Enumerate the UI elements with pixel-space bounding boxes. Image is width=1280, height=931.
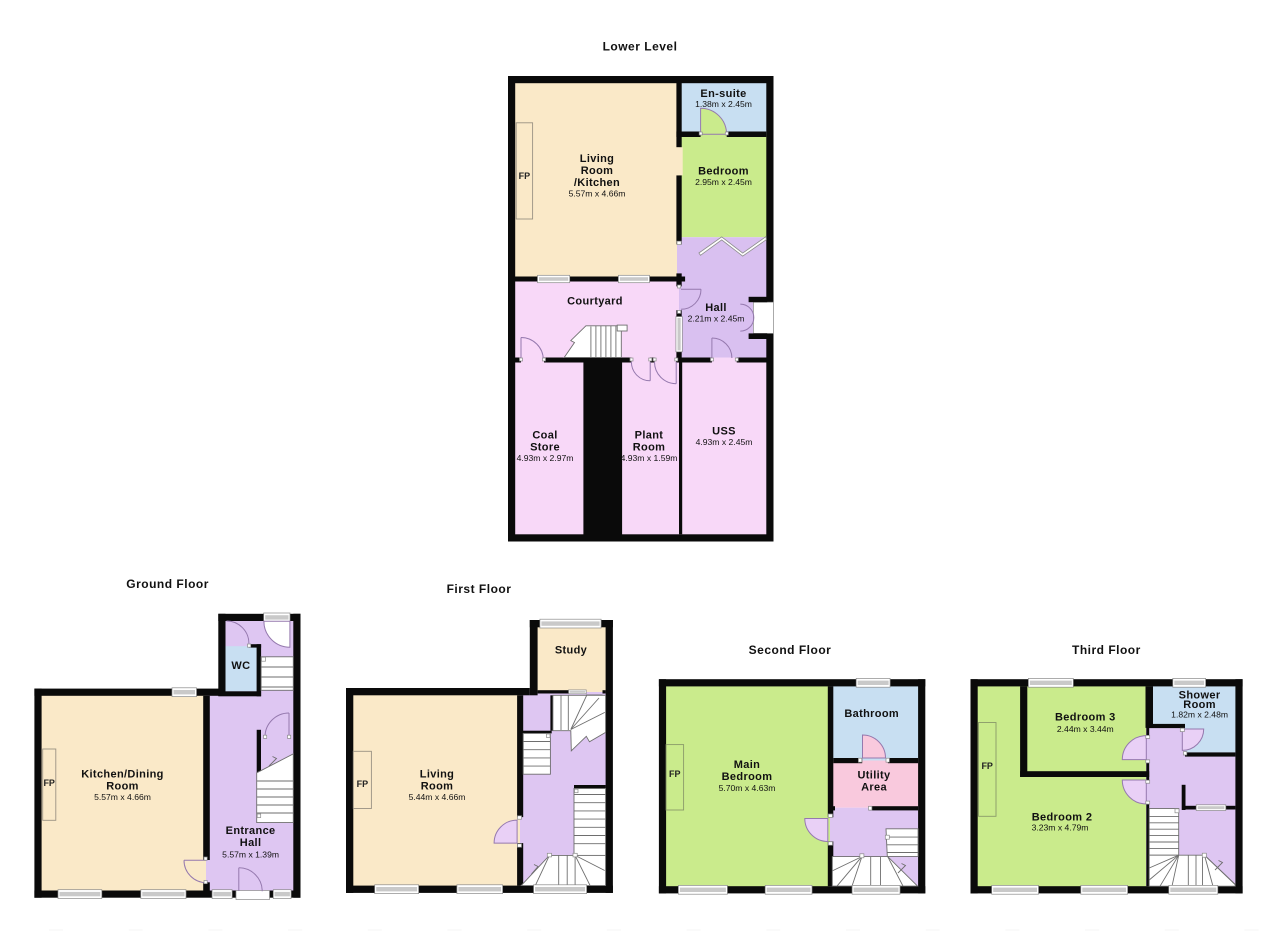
svg-text:WC: WC bbox=[231, 660, 250, 672]
svg-text:4.93m x 1.59m: 4.93m x 1.59m bbox=[621, 453, 678, 463]
svg-text:Coal: Coal bbox=[532, 430, 557, 442]
svg-text:Plant: Plant bbox=[635, 430, 664, 442]
svg-text:FP: FP bbox=[519, 171, 531, 181]
svg-text:Hall: Hall bbox=[240, 837, 262, 849]
svg-text:4.93m x 2.97m: 4.93m x 2.97m bbox=[517, 453, 574, 463]
svg-text:4.93m x 2.45m: 4.93m x 2.45m bbox=[696, 437, 753, 447]
svg-text:Room: Room bbox=[106, 781, 139, 793]
svg-text:Area: Area bbox=[861, 782, 887, 794]
svg-text:Utility: Utility bbox=[857, 770, 891, 782]
svg-text:Room: Room bbox=[633, 442, 666, 454]
svg-text:5.57m x 4.66m: 5.57m x 4.66m bbox=[94, 792, 151, 802]
svg-text:2.44m x 3.44m: 2.44m x 3.44m bbox=[1057, 724, 1114, 734]
svg-text:Living: Living bbox=[580, 153, 615, 165]
svg-text:/Kitchen: /Kitchen bbox=[574, 177, 620, 189]
svg-text:1.38m x 2.45m: 1.38m x 2.45m bbox=[695, 99, 752, 109]
svg-text:2.21m x 2.45m: 2.21m x 2.45m bbox=[688, 314, 745, 324]
svg-text:Main: Main bbox=[734, 759, 760, 771]
svg-text:FP: FP bbox=[43, 778, 55, 788]
svg-text:Bedroom: Bedroom bbox=[698, 166, 749, 178]
svg-text:Store: Store bbox=[530, 442, 560, 454]
svg-text:Living: Living bbox=[420, 769, 455, 781]
svg-text:FP: FP bbox=[669, 769, 681, 779]
svg-text:Bedroom 3: Bedroom 3 bbox=[1055, 712, 1116, 724]
svg-text:Study: Study bbox=[555, 645, 588, 657]
svg-text:Kitchen/Dining: Kitchen/Dining bbox=[81, 769, 164, 781]
svg-text:5.57m x 4.66m: 5.57m x 4.66m bbox=[569, 189, 626, 199]
svg-text:5.44m x 4.66m: 5.44m x 4.66m bbox=[409, 792, 466, 802]
svg-text:FP: FP bbox=[981, 761, 993, 771]
svg-text:Room: Room bbox=[581, 165, 614, 177]
svg-text:1.82m x 2.48m: 1.82m x 2.48m bbox=[1171, 710, 1228, 720]
svg-text:Bedroom: Bedroom bbox=[722, 771, 773, 783]
svg-text:5.70m x 4.63m: 5.70m x 4.63m bbox=[719, 783, 776, 793]
svg-text:Room: Room bbox=[421, 781, 454, 793]
svg-text:Third Floor: Third Floor bbox=[1072, 643, 1141, 657]
svg-text:5.57m x 1.39m: 5.57m x 1.39m bbox=[222, 850, 279, 860]
svg-text:3.23m x 4.79m: 3.23m x 4.79m bbox=[1032, 823, 1089, 833]
svg-text:2.95m x 2.45m: 2.95m x 2.45m bbox=[695, 177, 752, 187]
svg-text:FP: FP bbox=[357, 779, 369, 789]
svg-text:Entrance: Entrance bbox=[226, 825, 276, 837]
svg-text:USS: USS bbox=[712, 426, 736, 438]
svg-text:Hall: Hall bbox=[705, 302, 727, 314]
svg-text:Lower Level: Lower Level bbox=[603, 40, 678, 54]
svg-text:Courtyard: Courtyard bbox=[567, 296, 623, 308]
svg-text:First Floor: First Floor bbox=[447, 582, 512, 596]
svg-text:Ground Floor: Ground Floor bbox=[126, 577, 209, 591]
svg-text:Second Floor: Second Floor bbox=[749, 643, 832, 657]
svg-text:Bathroom: Bathroom bbox=[844, 708, 899, 720]
